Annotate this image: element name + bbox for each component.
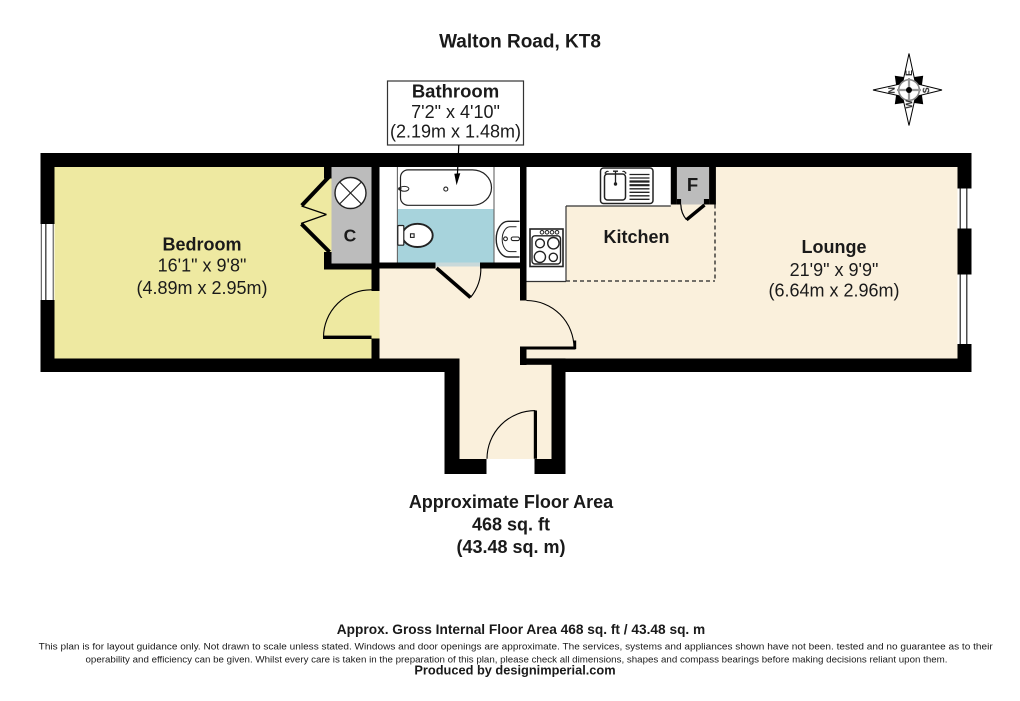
svg-text:16'1" x 9'8": 16'1" x 9'8" bbox=[158, 256, 247, 276]
svg-text:F: F bbox=[687, 174, 698, 195]
svg-text:S: S bbox=[921, 87, 931, 93]
svg-text:Bedroom: Bedroom bbox=[162, 235, 241, 255]
svg-text:Kitchen: Kitchen bbox=[603, 227, 669, 247]
svg-text:(6.64m x 2.96m): (6.64m x 2.96m) bbox=[768, 281, 899, 301]
svg-text:468 sq. ft: 468 sq. ft bbox=[472, 515, 550, 535]
svg-text:Approximate Floor Area: Approximate Floor Area bbox=[409, 492, 614, 512]
svg-text:(43.48 sq. m): (43.48 sq. m) bbox=[456, 537, 565, 557]
svg-text:Walton Road, KT8: Walton Road, KT8 bbox=[439, 32, 601, 53]
svg-text:21'9" x 9'9": 21'9" x 9'9" bbox=[790, 260, 879, 280]
svg-text:W: W bbox=[904, 100, 914, 109]
svg-text:C: C bbox=[344, 226, 357, 246]
svg-text:Bathroom: Bathroom bbox=[412, 81, 499, 102]
svg-text:E: E bbox=[904, 70, 914, 76]
svg-text:Lounge: Lounge bbox=[802, 237, 867, 257]
svg-text:This plan is for layout guidan: This plan is for layout guidance only. N… bbox=[39, 642, 993, 652]
svg-text:7'2" x 4'10": 7'2" x 4'10" bbox=[411, 102, 500, 122]
svg-text:(2.19m x 1.48m): (2.19m x 1.48m) bbox=[390, 122, 521, 142]
svg-text:N: N bbox=[887, 87, 897, 94]
svg-text:Produced by designimperial.com: Produced by designimperial.com bbox=[414, 663, 615, 678]
svg-text:Approx. Gross Internal Floor A: Approx. Gross Internal Floor Area 468 sq… bbox=[337, 622, 705, 637]
svg-text:(4.89m x 2.95m): (4.89m x 2.95m) bbox=[136, 278, 267, 298]
